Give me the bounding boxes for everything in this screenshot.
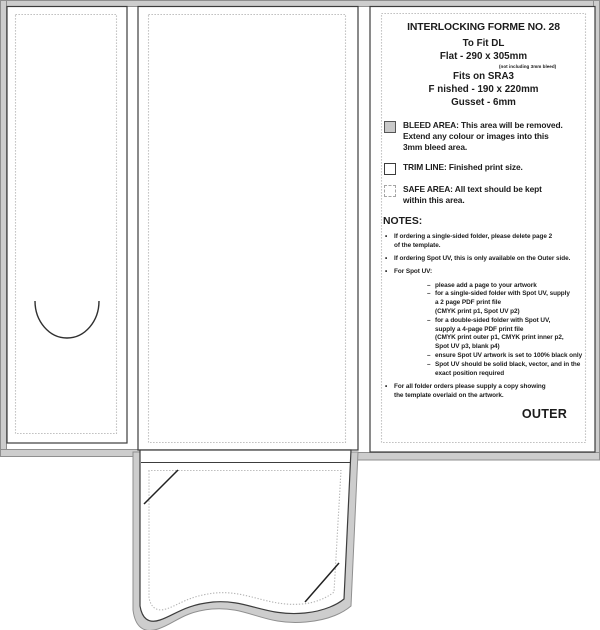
bullet-marker: •: [385, 268, 390, 277]
fit-spec: To Fit DL: [381, 38, 586, 49]
dash-marker: –: [427, 290, 432, 316]
middle-panel: [138, 7, 358, 451]
template-header: INTERLOCKING FORME NO. 28 To Fit DL Flat…: [381, 13, 586, 108]
outer-side-label: OUTER: [522, 407, 567, 421]
flat-size-spec: Flat - 290 x 305mm: [381, 51, 586, 62]
legend-item-bleed: BLEED AREA: This area will be removed. E…: [384, 120, 586, 153]
legend-item-trim: TRIM LINE: Finished print size.: [384, 162, 586, 175]
spot-uv-sub-3: – for a double-sided folder with Spot UV…: [427, 317, 586, 352]
note-overlay-copy: • For all folder orders please supply a …: [385, 383, 586, 401]
finished-size-spec: F nished - 190 x 220mm: [381, 84, 586, 95]
bleed-swatch-icon: [384, 121, 396, 133]
template-title: INTERLOCKING FORME NO. 28: [381, 22, 586, 34]
folder-template-sheet: INTERLOCKING FORME NO. 28 To Fit DL Flat…: [0, 0, 600, 630]
dash-marker: –: [427, 361, 432, 379]
safe-swatch-icon: [384, 185, 396, 197]
spot-uv-sub-2: – for a single-sided folder with Spot UV…: [427, 290, 586, 316]
legend-bleed-text: BLEED AREA: This area will be removed. E…: [403, 120, 563, 153]
gusset-spec: Gusset - 6mm: [381, 97, 586, 108]
bullet-marker: •: [385, 255, 390, 264]
bullet-marker: •: [385, 233, 390, 251]
legend-safe-text: SAFE AREA: All text should be kept withi…: [403, 184, 542, 206]
flat-size-note: (not including 3mm bleed): [381, 64, 586, 69]
note-spot-uv-outer: • If ordering Spot UV, this is only avai…: [385, 255, 586, 264]
spot-uv-sublist: – please add a page to your artwork – fo…: [381, 282, 586, 379]
sheet-spec: Fits on SRA3: [381, 71, 586, 82]
note-single-sided: • If ordering a single-sided folder, ple…: [385, 233, 586, 251]
trim-swatch-icon: [384, 163, 396, 175]
legend-trim-text: TRIM LINE: Finished print size.: [403, 162, 523, 173]
spot-uv-sub-4: – ensure Spot UV artwork is set to 100% …: [427, 352, 586, 361]
legend: BLEED AREA: This area will be removed. E…: [381, 120, 586, 206]
notes-heading: NOTES:: [383, 216, 586, 227]
spot-uv-sub-1: – please add a page to your artwork: [427, 282, 586, 291]
dash-marker: –: [427, 352, 432, 361]
note-for-spot-uv: • For Spot UV:: [385, 268, 586, 277]
dash-marker: –: [427, 317, 432, 352]
legend-item-safe: SAFE AREA: All text should be kept withi…: [384, 184, 586, 206]
instructions-panel: INTERLOCKING FORME NO. 28 To Fit DL Flat…: [381, 13, 586, 443]
left-panel: [7, 7, 127, 444]
bullet-marker: •: [385, 383, 390, 401]
spot-uv-sub-5: – Spot UV should be solid black, vector,…: [427, 361, 586, 379]
dash-marker: –: [427, 282, 432, 291]
